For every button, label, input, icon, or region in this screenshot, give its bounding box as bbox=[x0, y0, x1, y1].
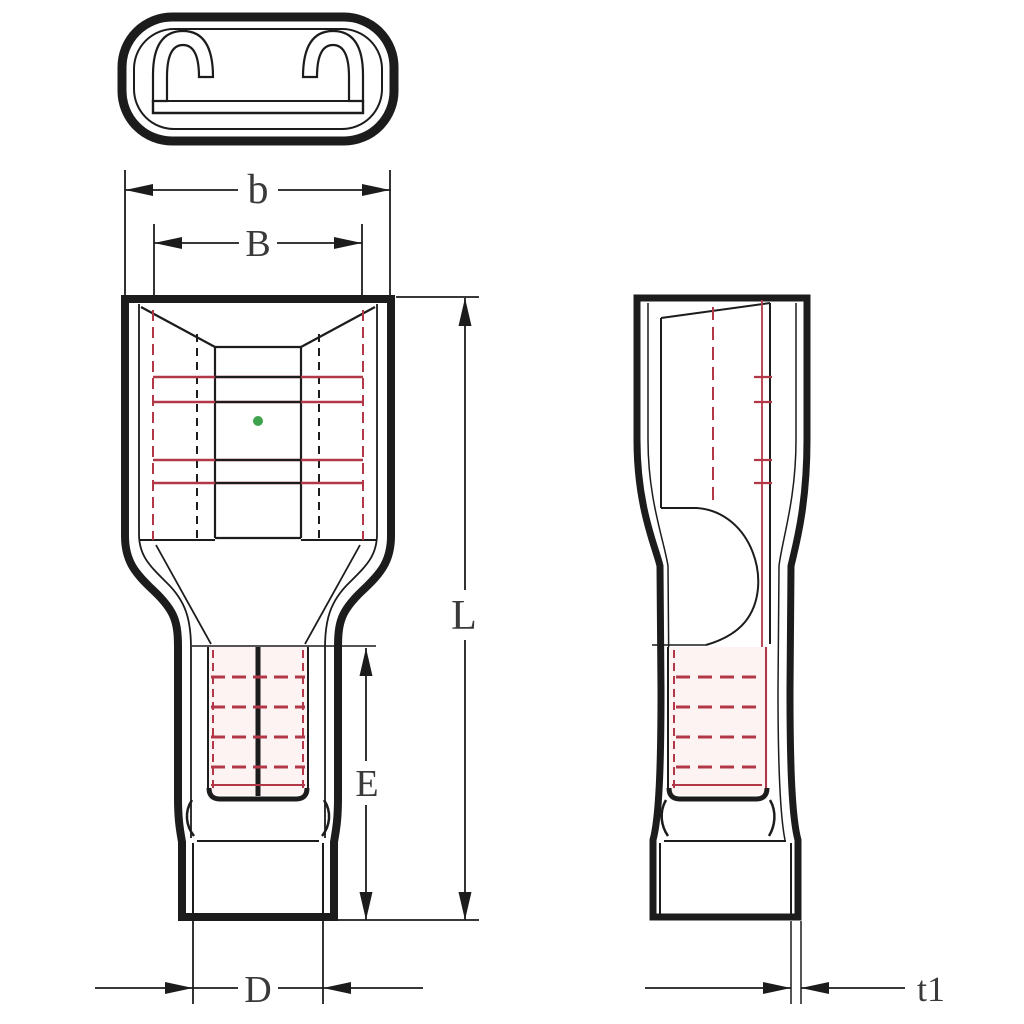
arrowhead-down bbox=[459, 892, 472, 920]
side-view bbox=[637, 298, 807, 917]
dim-D: D bbox=[95, 921, 423, 1011]
dim-B: B bbox=[154, 221, 362, 296]
arrowhead-right bbox=[334, 237, 362, 249]
dim-D-label: D bbox=[244, 969, 271, 1011]
dim-b-label: b bbox=[248, 167, 269, 213]
front-outer-silhouette bbox=[125, 299, 391, 917]
center-dot bbox=[253, 416, 263, 426]
dim-L-label: L bbox=[451, 593, 477, 639]
arrowhead-up bbox=[459, 298, 472, 326]
arrowhead-right bbox=[763, 982, 791, 994]
dim-E: E bbox=[350, 648, 384, 920]
dim-B-label: B bbox=[245, 223, 270, 265]
side-barrel-wash bbox=[668, 647, 768, 795]
arrowhead-left bbox=[125, 184, 153, 196]
dim-t1: t1 bbox=[645, 921, 945, 1009]
arrowhead-right bbox=[362, 184, 390, 196]
top-view bbox=[122, 17, 394, 141]
arrowhead-left bbox=[801, 982, 829, 994]
dim-E-label: E bbox=[355, 763, 378, 805]
dim-t1-label: t1 bbox=[917, 969, 945, 1009]
front-view bbox=[125, 299, 391, 917]
arrowhead-right bbox=[165, 982, 193, 994]
arrowhead-up bbox=[360, 648, 373, 676]
arrowhead-left bbox=[154, 237, 182, 249]
arrowhead-down bbox=[360, 892, 373, 920]
arrowhead-left bbox=[323, 982, 351, 994]
drawing-canvas: b B L E D bbox=[0, 0, 1024, 1024]
terminal-technical-drawing: b B L E D bbox=[0, 0, 1024, 1024]
